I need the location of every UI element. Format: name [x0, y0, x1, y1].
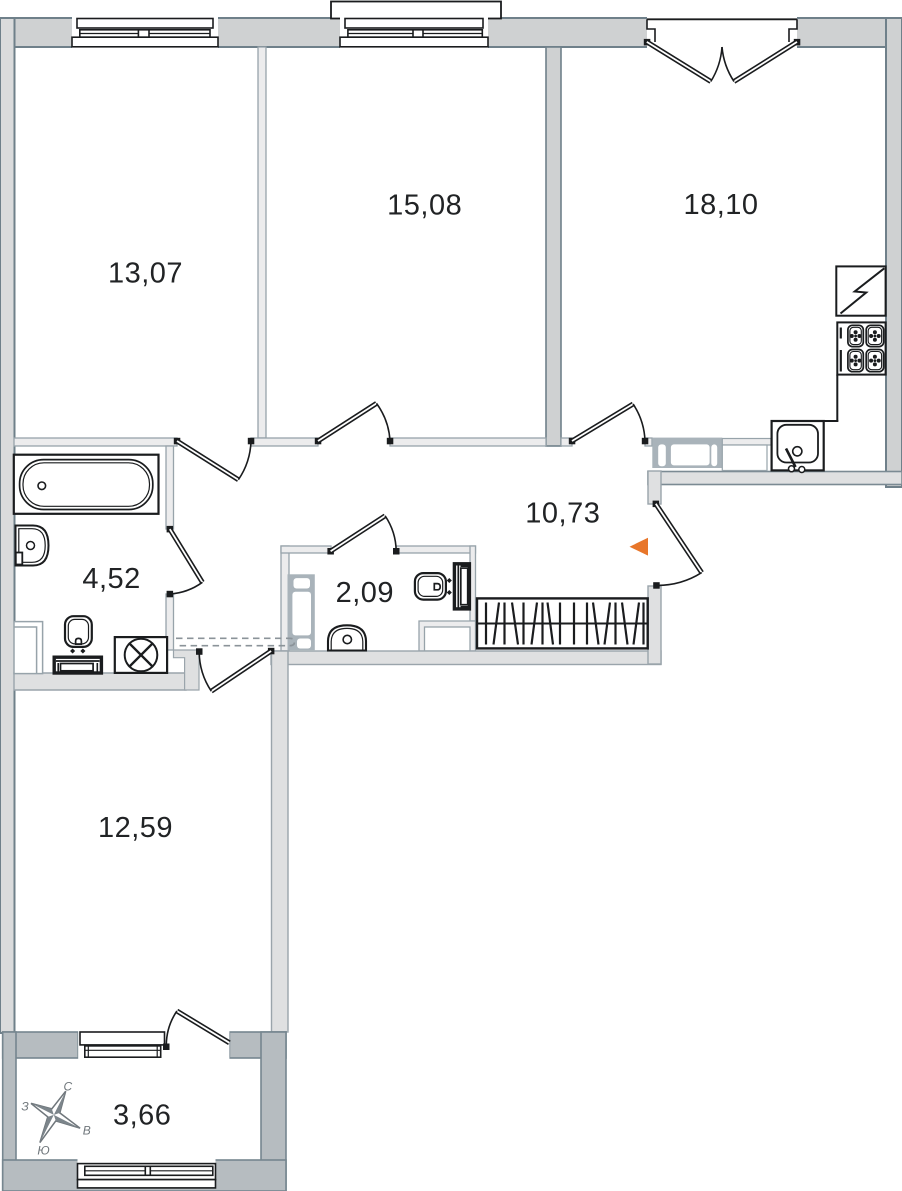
svg-text:Ю: Ю: [37, 1143, 49, 1157]
svg-text:2,09: 2,09: [336, 577, 394, 609]
svg-text:4,52: 4,52: [82, 563, 140, 595]
svg-text:18,10: 18,10: [683, 189, 758, 221]
svg-text:13,07: 13,07: [108, 258, 183, 290]
svg-text:3,66: 3,66: [113, 1100, 171, 1132]
svg-text:В: В: [83, 1123, 91, 1137]
svg-text:З: З: [21, 1099, 29, 1113]
svg-text:15,08: 15,08: [387, 190, 462, 222]
svg-text:С: С: [63, 1079, 72, 1093]
svg-text:10,73: 10,73: [525, 498, 600, 530]
svg-text:12,59: 12,59: [98, 812, 173, 844]
